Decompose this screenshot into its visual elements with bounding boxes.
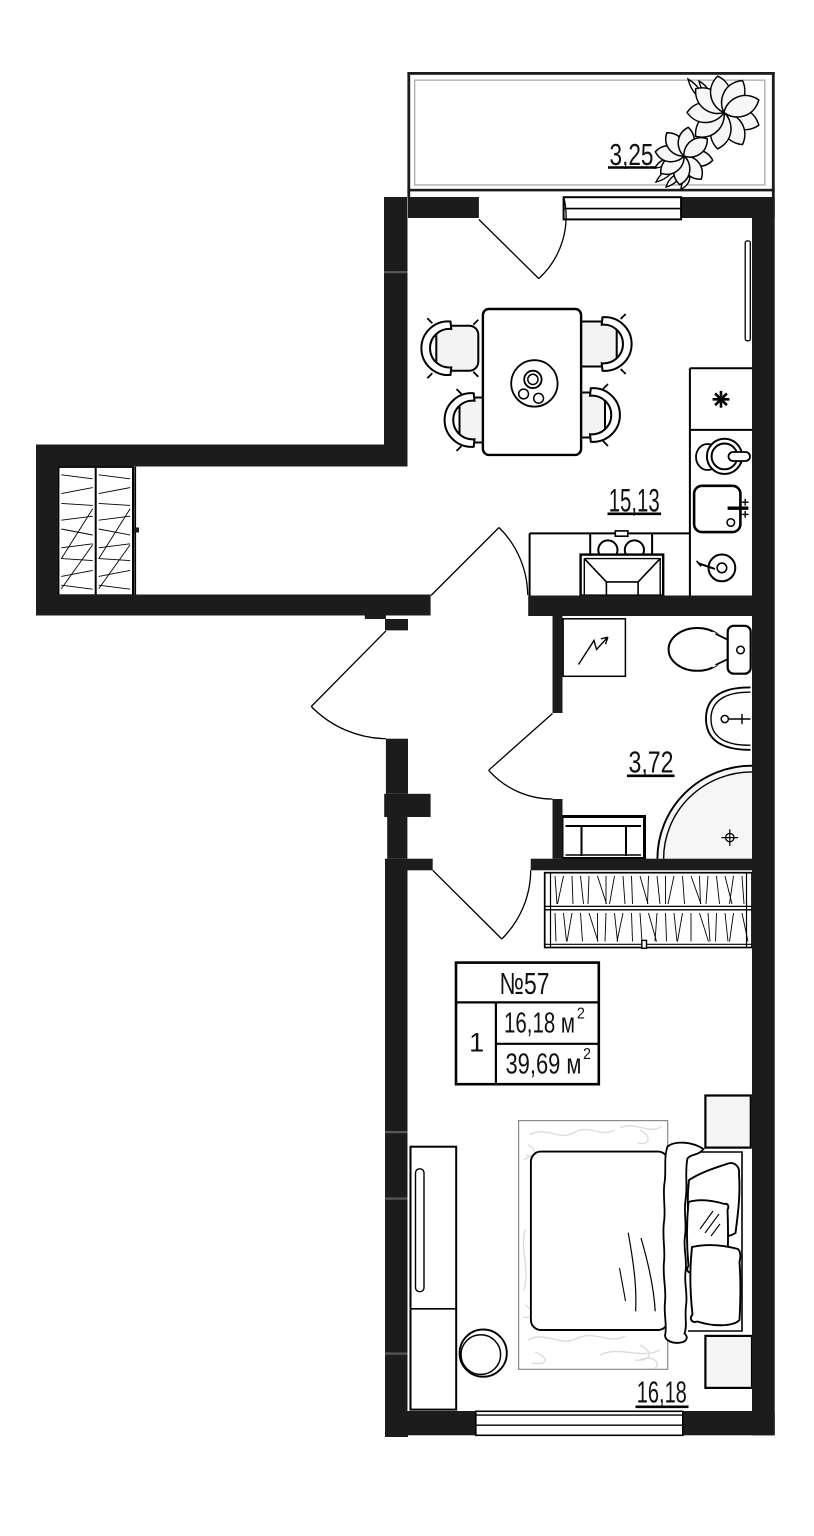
svg-text:39,69 м: 39,69 м xyxy=(506,1049,582,1081)
svg-text:3,72: 3,72 xyxy=(629,746,674,780)
svg-text:№57: №57 xyxy=(500,967,550,1001)
svg-text:16,18: 16,18 xyxy=(637,1376,687,1410)
svg-text:2: 2 xyxy=(577,1006,585,1023)
svg-text:16,18 м: 16,18 м xyxy=(504,1008,575,1040)
svg-text:1: 1 xyxy=(469,1028,484,1058)
svg-text:2: 2 xyxy=(583,1046,591,1063)
